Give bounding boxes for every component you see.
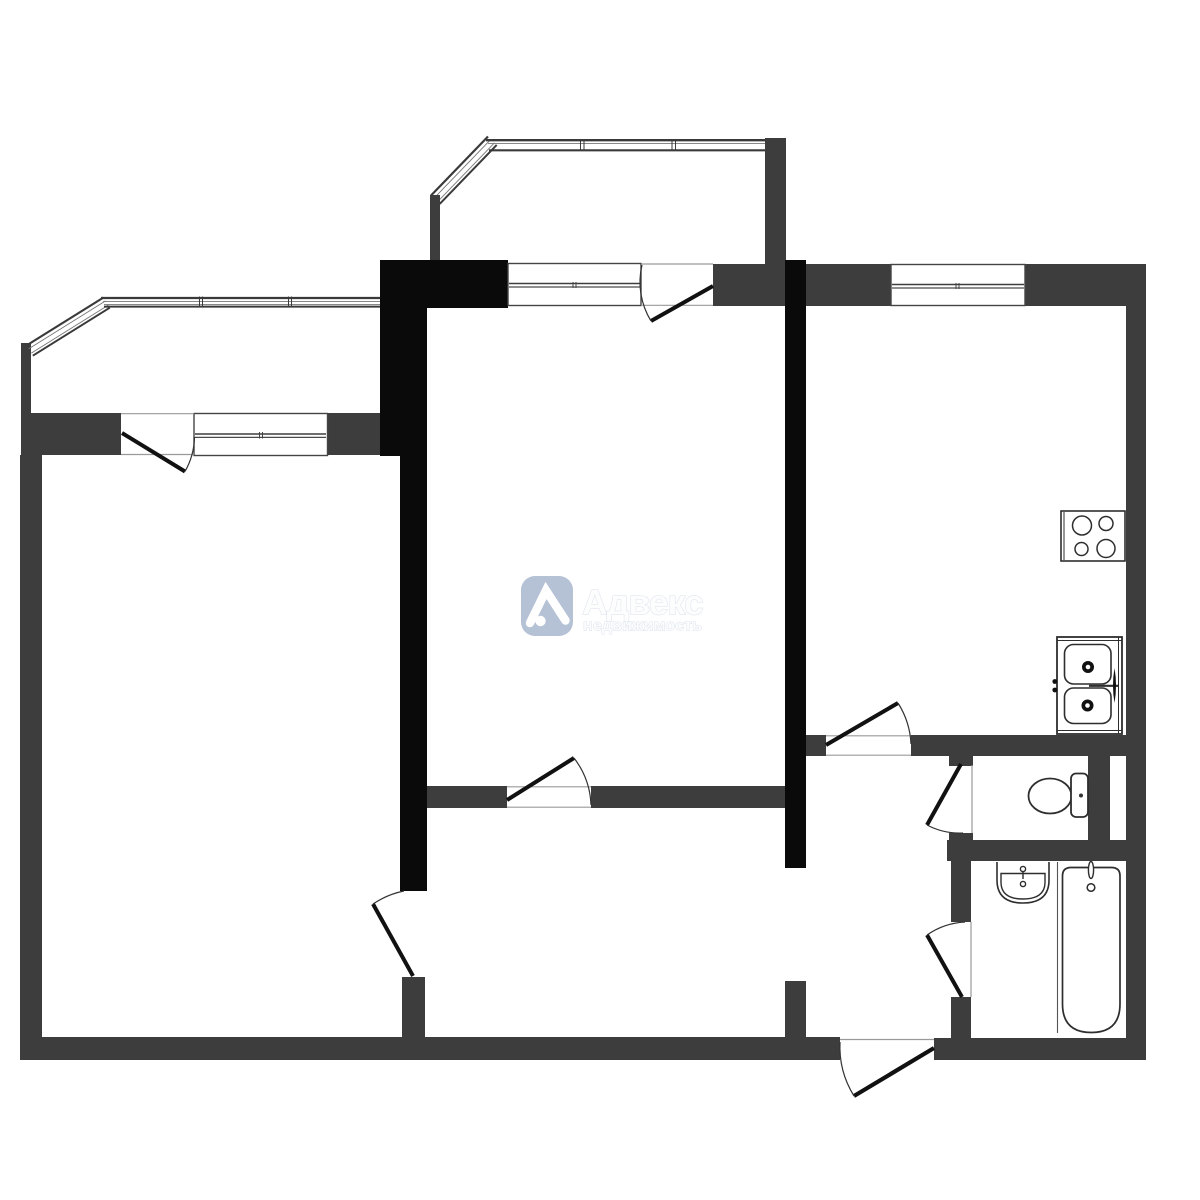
svg-text:Адвекс: Адвекс (582, 583, 703, 623)
svg-text:недвижимость: недвижимость (583, 618, 702, 635)
